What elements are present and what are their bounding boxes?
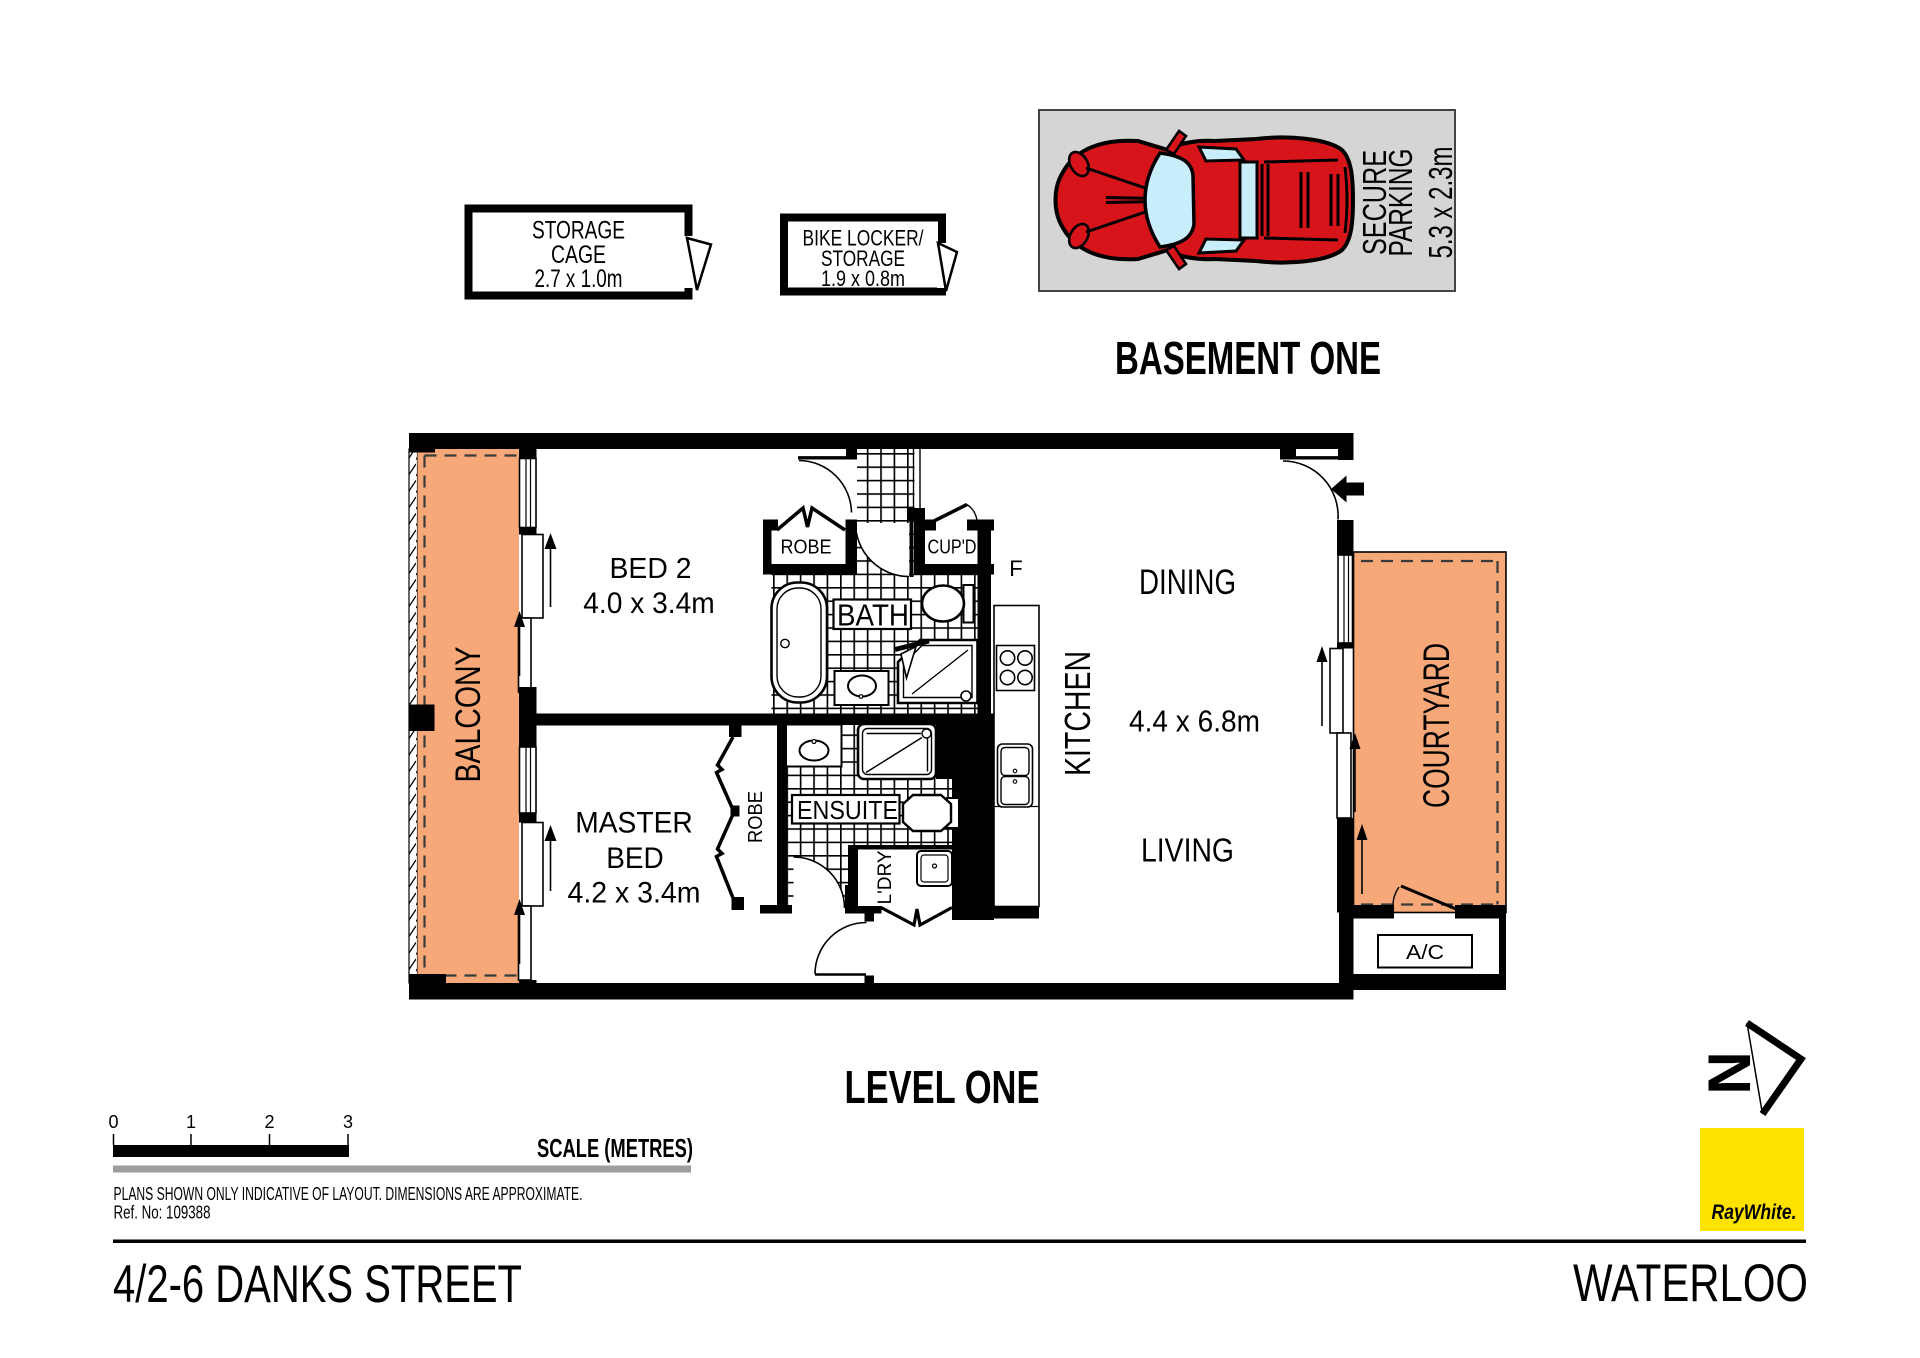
svg-text:BED: BED bbox=[606, 842, 664, 875]
svg-text:BATH: BATH bbox=[837, 598, 909, 633]
svg-text:Ref. No: 109388: Ref. No: 109388 bbox=[114, 1203, 211, 1223]
svg-text:4.0 x 3.4m: 4.0 x 3.4m bbox=[583, 587, 715, 620]
svg-text:MASTER: MASTER bbox=[575, 807, 693, 840]
svg-text:1.9 x 0.8m: 1.9 x 0.8m bbox=[821, 266, 905, 291]
svg-text:L'DRY: L'DRY bbox=[875, 850, 896, 904]
svg-text:ENSUITE: ENSUITE bbox=[797, 795, 898, 825]
svg-text:BASEMENT ONE: BASEMENT ONE bbox=[1115, 332, 1381, 384]
svg-text:2: 2 bbox=[264, 1112, 274, 1132]
svg-text:LEVEL ONE: LEVEL ONE bbox=[845, 1061, 1040, 1113]
svg-text:CUP'D: CUP'D bbox=[928, 537, 977, 559]
svg-text:4.4 x 6.8m: 4.4 x 6.8m bbox=[1129, 704, 1260, 739]
svg-text:3: 3 bbox=[343, 1112, 353, 1132]
svg-text:5.3 x 2.3m: 5.3 x 2.3m bbox=[1422, 147, 1459, 259]
svg-text:RayWhite.: RayWhite. bbox=[1712, 1201, 1797, 1224]
svg-text:4/2-6 DANKS STREET: 4/2-6 DANKS STREET bbox=[113, 1255, 522, 1314]
svg-text:1: 1 bbox=[186, 1112, 196, 1132]
svg-text:N: N bbox=[1696, 1051, 1763, 1094]
svg-text:DINING: DINING bbox=[1139, 563, 1236, 602]
svg-text:BALCONY: BALCONY bbox=[449, 647, 488, 783]
svg-text:WATERLOO: WATERLOO bbox=[1573, 1254, 1808, 1313]
svg-text:ROBE: ROBE bbox=[745, 791, 767, 843]
svg-text:F: F bbox=[1009, 556, 1022, 581]
svg-text:2.7 x 1.0m: 2.7 x 1.0m bbox=[535, 265, 623, 293]
svg-text:PARKING: PARKING bbox=[1382, 149, 1419, 257]
svg-text:4.2 x 3.4m: 4.2 x 3.4m bbox=[568, 877, 701, 910]
svg-text:KITCHEN: KITCHEN bbox=[1057, 651, 1098, 776]
svg-text:LIVING: LIVING bbox=[1141, 832, 1234, 869]
svg-text:PLANS SHOWN ONLY INDICATIVE OF: PLANS SHOWN ONLY INDICATIVE OF LAYOUT. D… bbox=[114, 1184, 583, 1204]
svg-text:BED 2: BED 2 bbox=[610, 553, 692, 585]
svg-text:SCALE (METRES): SCALE (METRES) bbox=[537, 1133, 693, 1163]
svg-text:COURTYARD: COURTYARD bbox=[1416, 643, 1457, 808]
svg-text:ROBE: ROBE bbox=[781, 537, 832, 559]
svg-text:A/C: A/C bbox=[1406, 942, 1444, 964]
svg-text:0: 0 bbox=[108, 1112, 118, 1132]
